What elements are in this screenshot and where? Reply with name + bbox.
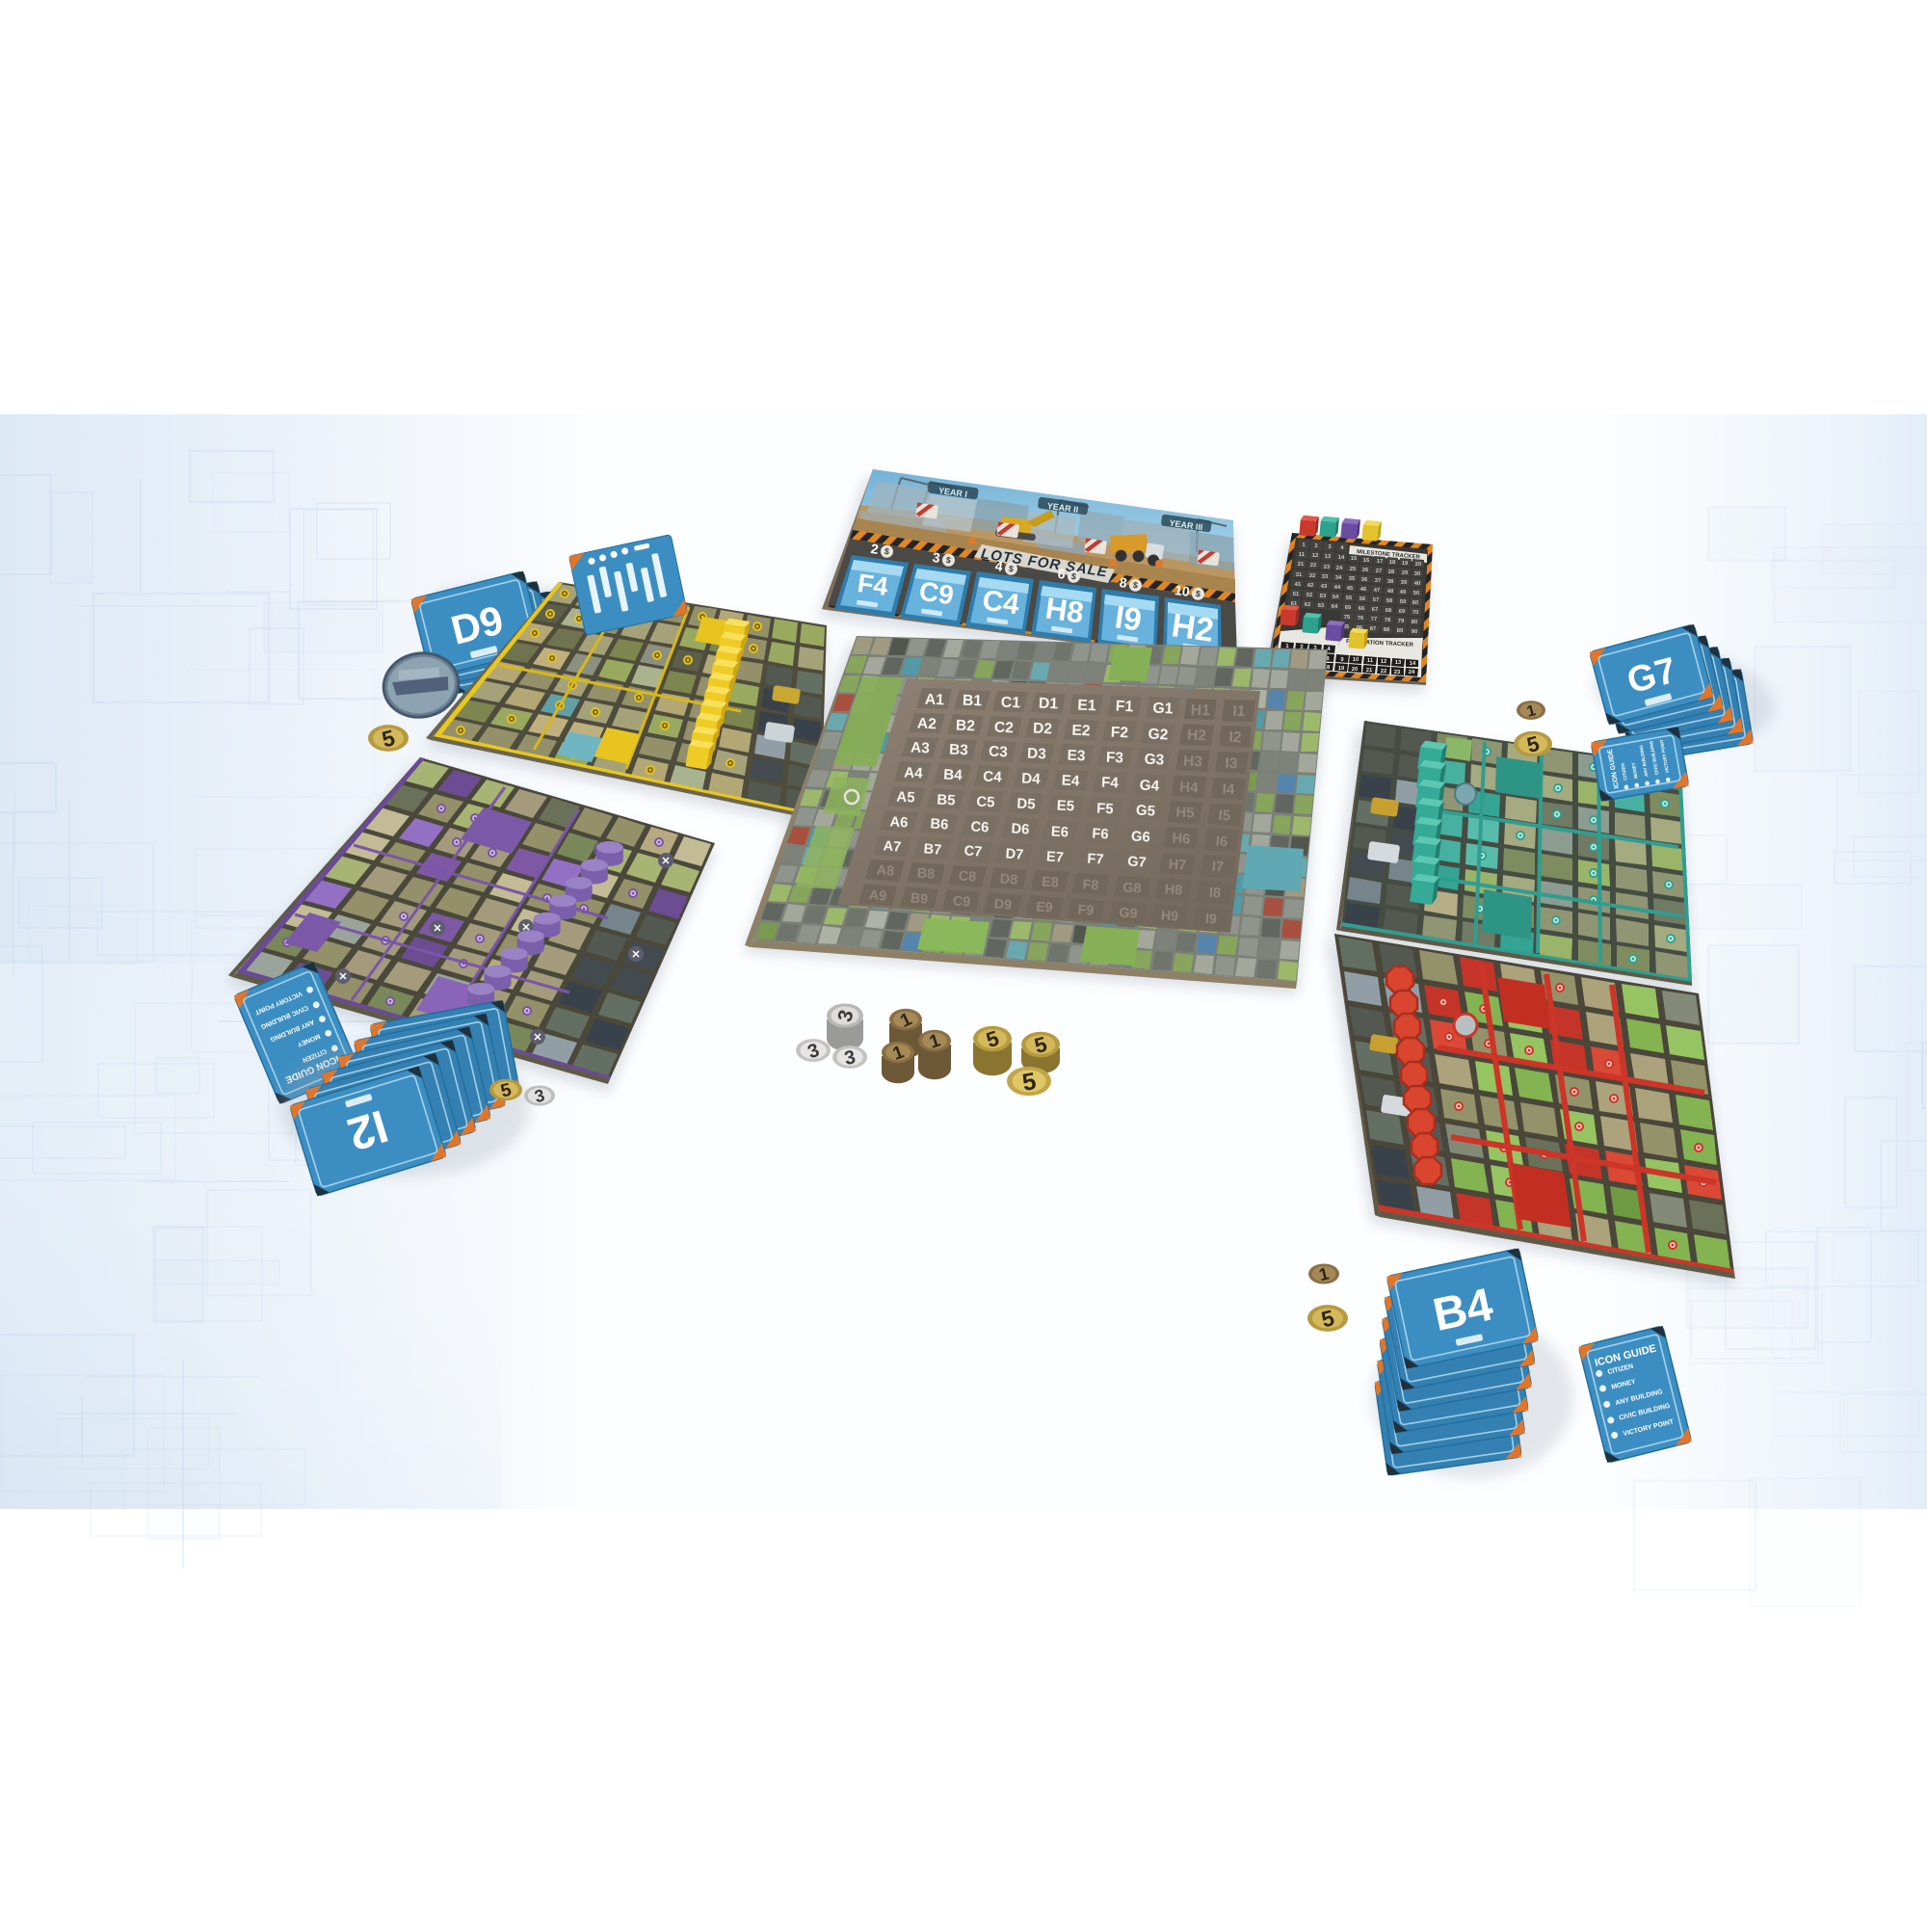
svg-text:I9: I9 <box>1113 598 1144 637</box>
svg-text:62: 62 <box>1305 602 1310 608</box>
svg-text:✕: ✕ <box>433 923 441 935</box>
svg-text:59: 59 <box>1400 599 1407 605</box>
svg-text:57: 57 <box>1373 597 1379 603</box>
svg-text:12: 12 <box>1312 553 1318 559</box>
svg-text:I3: I3 <box>1225 755 1238 773</box>
svg-text:10: 10 <box>1174 582 1191 599</box>
svg-text:46: 46 <box>1360 587 1367 593</box>
svg-text:77: 77 <box>1371 617 1377 622</box>
svg-text:H1: H1 <box>1191 702 1211 720</box>
svg-text:23: 23 <box>1324 565 1331 570</box>
svg-text:H2: H2 <box>1187 728 1207 745</box>
svg-text:D5: D5 <box>1016 795 1036 812</box>
svg-text:67: 67 <box>1372 607 1378 613</box>
svg-text:D6: D6 <box>1011 821 1030 837</box>
svg-text:H8: H8 <box>1164 882 1182 898</box>
svg-text:79: 79 <box>1398 619 1405 624</box>
svg-text:32: 32 <box>1309 573 1315 579</box>
svg-text:69: 69 <box>1399 609 1406 615</box>
svg-text:E1: E1 <box>1077 698 1096 715</box>
svg-text:21: 21 <box>1298 562 1305 568</box>
svg-text:C9: C9 <box>952 893 970 910</box>
svg-text:B5: B5 <box>937 791 956 808</box>
svg-text:C6: C6 <box>970 819 990 835</box>
svg-text:G8: G8 <box>1122 880 1142 896</box>
svg-text:42: 42 <box>1307 583 1313 589</box>
svg-text:13: 13 <box>1395 660 1402 666</box>
svg-text:C2: C2 <box>994 720 1015 737</box>
svg-text:I8: I8 <box>1208 886 1221 902</box>
svg-text:E7: E7 <box>1046 849 1065 865</box>
svg-text:H3: H3 <box>1183 754 1202 771</box>
svg-text:20: 20 <box>1415 562 1421 568</box>
svg-text:H6: H6 <box>1172 831 1191 847</box>
svg-text:14: 14 <box>1338 555 1345 561</box>
svg-text:B6: B6 <box>930 816 949 833</box>
svg-text:11: 11 <box>1299 552 1306 558</box>
svg-text:87: 87 <box>1370 626 1376 632</box>
svg-text:C4: C4 <box>983 769 1003 786</box>
svg-text:75: 75 <box>1344 615 1351 621</box>
svg-text:✕: ✕ <box>533 1032 541 1044</box>
svg-text:36: 36 <box>1361 577 1368 583</box>
svg-text:G4: G4 <box>1139 777 1160 794</box>
svg-text:A1: A1 <box>925 692 945 709</box>
svg-text:65: 65 <box>1345 605 1352 611</box>
svg-text:31: 31 <box>1296 572 1303 578</box>
svg-text:C8: C8 <box>958 868 976 885</box>
svg-text:F9: F9 <box>1077 902 1095 918</box>
svg-text:H7: H7 <box>1168 857 1187 873</box>
svg-text:76: 76 <box>1358 616 1364 622</box>
svg-text:D9: D9 <box>993 896 1012 913</box>
svg-text:14: 14 <box>1410 661 1416 667</box>
svg-text:E6: E6 <box>1050 824 1069 840</box>
svg-text:I9: I9 <box>1204 912 1217 928</box>
svg-text:19: 19 <box>1338 666 1345 672</box>
svg-text:21: 21 <box>1366 668 1373 674</box>
svg-text:B4: B4 <box>943 767 963 784</box>
svg-text:38: 38 <box>1387 579 1394 585</box>
svg-text:F5: F5 <box>1096 801 1114 818</box>
svg-text:35: 35 <box>1349 576 1356 582</box>
svg-text:F2: F2 <box>1110 725 1128 742</box>
svg-text:12: 12 <box>1381 659 1386 665</box>
svg-text:G9: G9 <box>1119 905 1138 921</box>
svg-text:39: 39 <box>1401 580 1408 586</box>
svg-text:78: 78 <box>1385 618 1391 623</box>
svg-text:F4: F4 <box>856 569 889 601</box>
svg-text:C3: C3 <box>989 744 1008 761</box>
svg-text:G3: G3 <box>1144 752 1164 769</box>
svg-text:G2: G2 <box>1148 727 1169 744</box>
svg-text:B9: B9 <box>910 890 928 907</box>
svg-text:37: 37 <box>1375 578 1381 584</box>
svg-text:24: 24 <box>1336 566 1343 571</box>
svg-text:H9: H9 <box>1160 908 1178 924</box>
svg-text:19: 19 <box>1402 561 1409 567</box>
svg-text:I7: I7 <box>1211 860 1224 876</box>
svg-text:F1: F1 <box>1115 699 1133 716</box>
svg-text:C4: C4 <box>981 584 1022 621</box>
svg-text:25: 25 <box>1350 567 1357 572</box>
svg-text:D8: D8 <box>999 871 1017 887</box>
svg-text:A4: A4 <box>904 765 924 782</box>
svg-text:56: 56 <box>1359 596 1366 602</box>
svg-text:C1: C1 <box>1001 695 1021 712</box>
svg-text:I2: I2 <box>1228 729 1242 747</box>
svg-text:15: 15 <box>1351 556 1358 562</box>
svg-text:60: 60 <box>1412 600 1418 606</box>
svg-text:I6: I6 <box>1215 834 1227 851</box>
svg-text:C9: C9 <box>917 576 956 611</box>
svg-text:A7: A7 <box>883 838 902 855</box>
svg-text:B1: B1 <box>963 693 983 710</box>
svg-text:13: 13 <box>1325 554 1332 560</box>
svg-text:20: 20 <box>1352 667 1358 673</box>
svg-text:45: 45 <box>1347 586 1354 592</box>
svg-text:E3: E3 <box>1067 748 1086 765</box>
svg-text:43: 43 <box>1321 584 1328 590</box>
svg-text:80: 80 <box>1412 620 1417 625</box>
svg-text:G6: G6 <box>1131 829 1151 845</box>
svg-text:E2: E2 <box>1071 723 1091 740</box>
svg-text:H5: H5 <box>1175 804 1195 821</box>
svg-text:29: 29 <box>1402 570 1409 576</box>
svg-text:88: 88 <box>1384 627 1390 633</box>
svg-text:D2: D2 <box>1033 721 1053 738</box>
svg-text:63: 63 <box>1318 603 1325 609</box>
svg-text:30: 30 <box>1414 571 1420 577</box>
svg-text:68: 68 <box>1386 608 1392 614</box>
svg-text:18: 18 <box>1389 560 1396 566</box>
svg-text:24: 24 <box>1409 670 1415 675</box>
svg-text:F6: F6 <box>1092 826 1109 842</box>
svg-text:E8: E8 <box>1042 874 1060 890</box>
svg-text:F4: F4 <box>1101 775 1120 792</box>
svg-text:B3: B3 <box>949 742 968 759</box>
svg-text:✕: ✕ <box>661 856 670 867</box>
svg-text:54: 54 <box>1333 595 1339 600</box>
svg-text:B2: B2 <box>956 718 976 735</box>
svg-text:23: 23 <box>1394 670 1401 675</box>
svg-text:34: 34 <box>1335 575 1342 581</box>
svg-text:D1: D1 <box>1039 696 1059 713</box>
svg-text:A6: A6 <box>889 814 909 831</box>
svg-text:A5: A5 <box>896 788 915 806</box>
svg-text:26: 26 <box>1362 568 1369 573</box>
svg-text:A9: A9 <box>868 887 886 904</box>
svg-text:90: 90 <box>1412 629 1417 635</box>
svg-text:F7: F7 <box>1087 851 1104 867</box>
svg-text:48: 48 <box>1387 589 1394 595</box>
svg-text:G1: G1 <box>1152 701 1174 718</box>
svg-text:58: 58 <box>1386 598 1393 604</box>
svg-text:A3: A3 <box>911 740 930 757</box>
svg-text:51: 51 <box>1293 592 1300 597</box>
svg-text:70: 70 <box>1412 610 1418 616</box>
svg-text:44: 44 <box>1334 585 1341 591</box>
svg-text:H2: H2 <box>1170 607 1216 649</box>
svg-text:2: 2 <box>1314 543 1317 549</box>
svg-text:17: 17 <box>1377 559 1383 565</box>
svg-text:C5: C5 <box>976 793 995 810</box>
svg-text:89: 89 <box>1397 628 1404 634</box>
svg-text:G7: G7 <box>1127 854 1147 870</box>
svg-text:A8: A8 <box>876 862 894 879</box>
svg-text:E5: E5 <box>1056 798 1074 815</box>
svg-text:I4: I4 <box>1222 781 1235 799</box>
svg-text:F3: F3 <box>1106 750 1124 767</box>
svg-text:I1: I1 <box>1232 703 1246 721</box>
svg-text:D7: D7 <box>1005 846 1024 862</box>
svg-text:✕: ✕ <box>631 949 640 961</box>
svg-text:33: 33 <box>1322 574 1329 580</box>
svg-text:10: 10 <box>1353 657 1359 663</box>
svg-text:✕: ✕ <box>338 971 347 983</box>
svg-text:D3: D3 <box>1027 746 1046 763</box>
svg-text:B7: B7 <box>923 841 942 858</box>
svg-text:53: 53 <box>1320 594 1327 599</box>
svg-text:E9: E9 <box>1036 899 1054 915</box>
svg-text:22: 22 <box>1310 563 1316 569</box>
svg-text:11: 11 <box>1367 658 1374 664</box>
svg-text:D4: D4 <box>1021 771 1042 788</box>
svg-text:28: 28 <box>1388 569 1395 575</box>
svg-text:16: 16 <box>1363 558 1370 564</box>
svg-text:A2: A2 <box>917 716 937 733</box>
svg-text:49: 49 <box>1400 590 1407 595</box>
svg-text:50: 50 <box>1413 591 1419 596</box>
svg-text:27: 27 <box>1376 569 1382 574</box>
svg-text:C7: C7 <box>963 843 983 860</box>
svg-text:22: 22 <box>1381 669 1386 675</box>
svg-text:H4: H4 <box>1179 780 1200 797</box>
svg-text:H8: H8 <box>1043 591 1086 629</box>
svg-text:52: 52 <box>1307 593 1312 598</box>
svg-text:66: 66 <box>1359 606 1365 612</box>
svg-text:E4: E4 <box>1061 773 1080 790</box>
svg-text:55: 55 <box>1346 595 1353 601</box>
svg-text:64: 64 <box>1332 604 1338 610</box>
svg-text:G5: G5 <box>1136 802 1156 819</box>
svg-text:40: 40 <box>1414 581 1420 587</box>
svg-text:41: 41 <box>1295 582 1302 588</box>
svg-text:F8: F8 <box>1082 877 1099 893</box>
svg-text:B8: B8 <box>916 865 935 882</box>
svg-text:47: 47 <box>1374 588 1380 594</box>
svg-text:I5: I5 <box>1218 807 1230 825</box>
